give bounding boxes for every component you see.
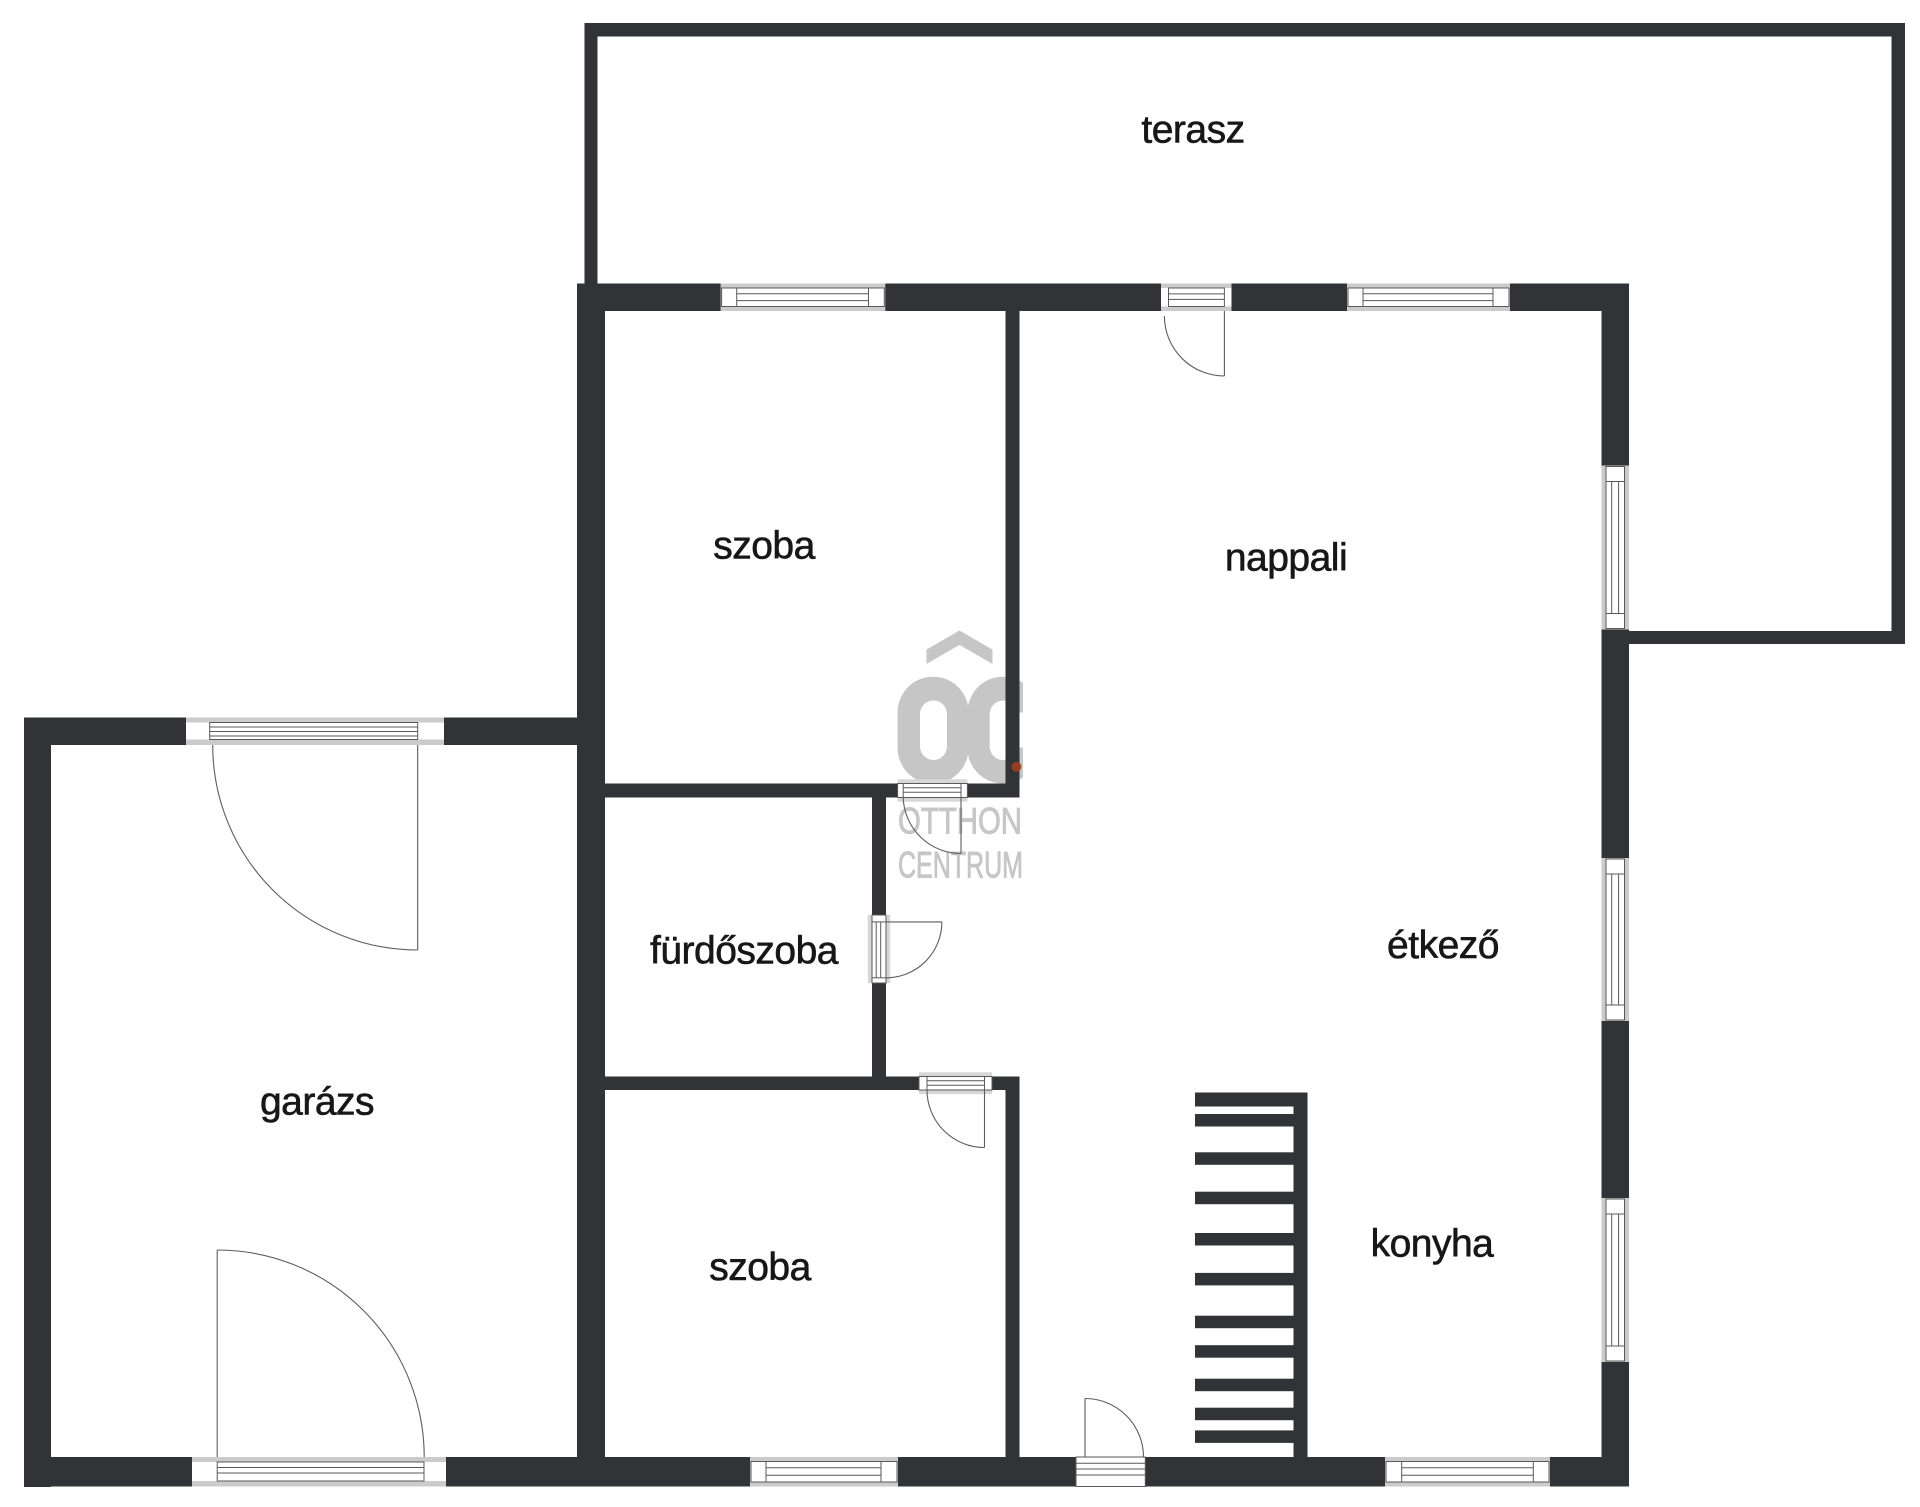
svg-text:terasz: terasz	[1141, 108, 1244, 151]
svg-text:nappali: nappali	[1225, 536, 1347, 579]
svg-text:fürdőszoba: fürdőszoba	[650, 929, 839, 972]
svg-text:szoba: szoba	[709, 1246, 811, 1289]
svg-text:szoba: szoba	[713, 524, 815, 567]
svg-text:garázs: garázs	[260, 1080, 374, 1123]
svg-text:étkező: étkező	[1387, 924, 1499, 967]
svg-text:OTTHON: OTTHON	[898, 801, 1022, 842]
svg-text:konyha: konyha	[1371, 1222, 1495, 1265]
